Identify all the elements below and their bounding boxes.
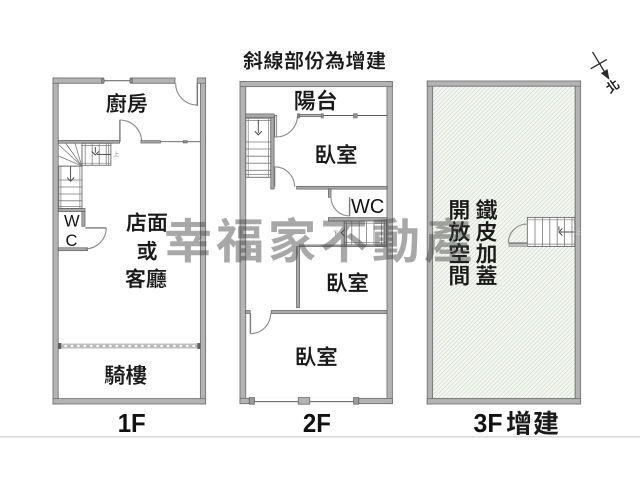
svg-text:3F: 3F xyxy=(474,408,503,438)
svg-text:W: W xyxy=(64,213,80,231)
svg-text:1F: 1F xyxy=(118,408,146,438)
svg-text:2F: 2F xyxy=(303,408,331,438)
svg-text:C: C xyxy=(66,232,78,250)
svg-text:WC: WC xyxy=(351,196,384,218)
